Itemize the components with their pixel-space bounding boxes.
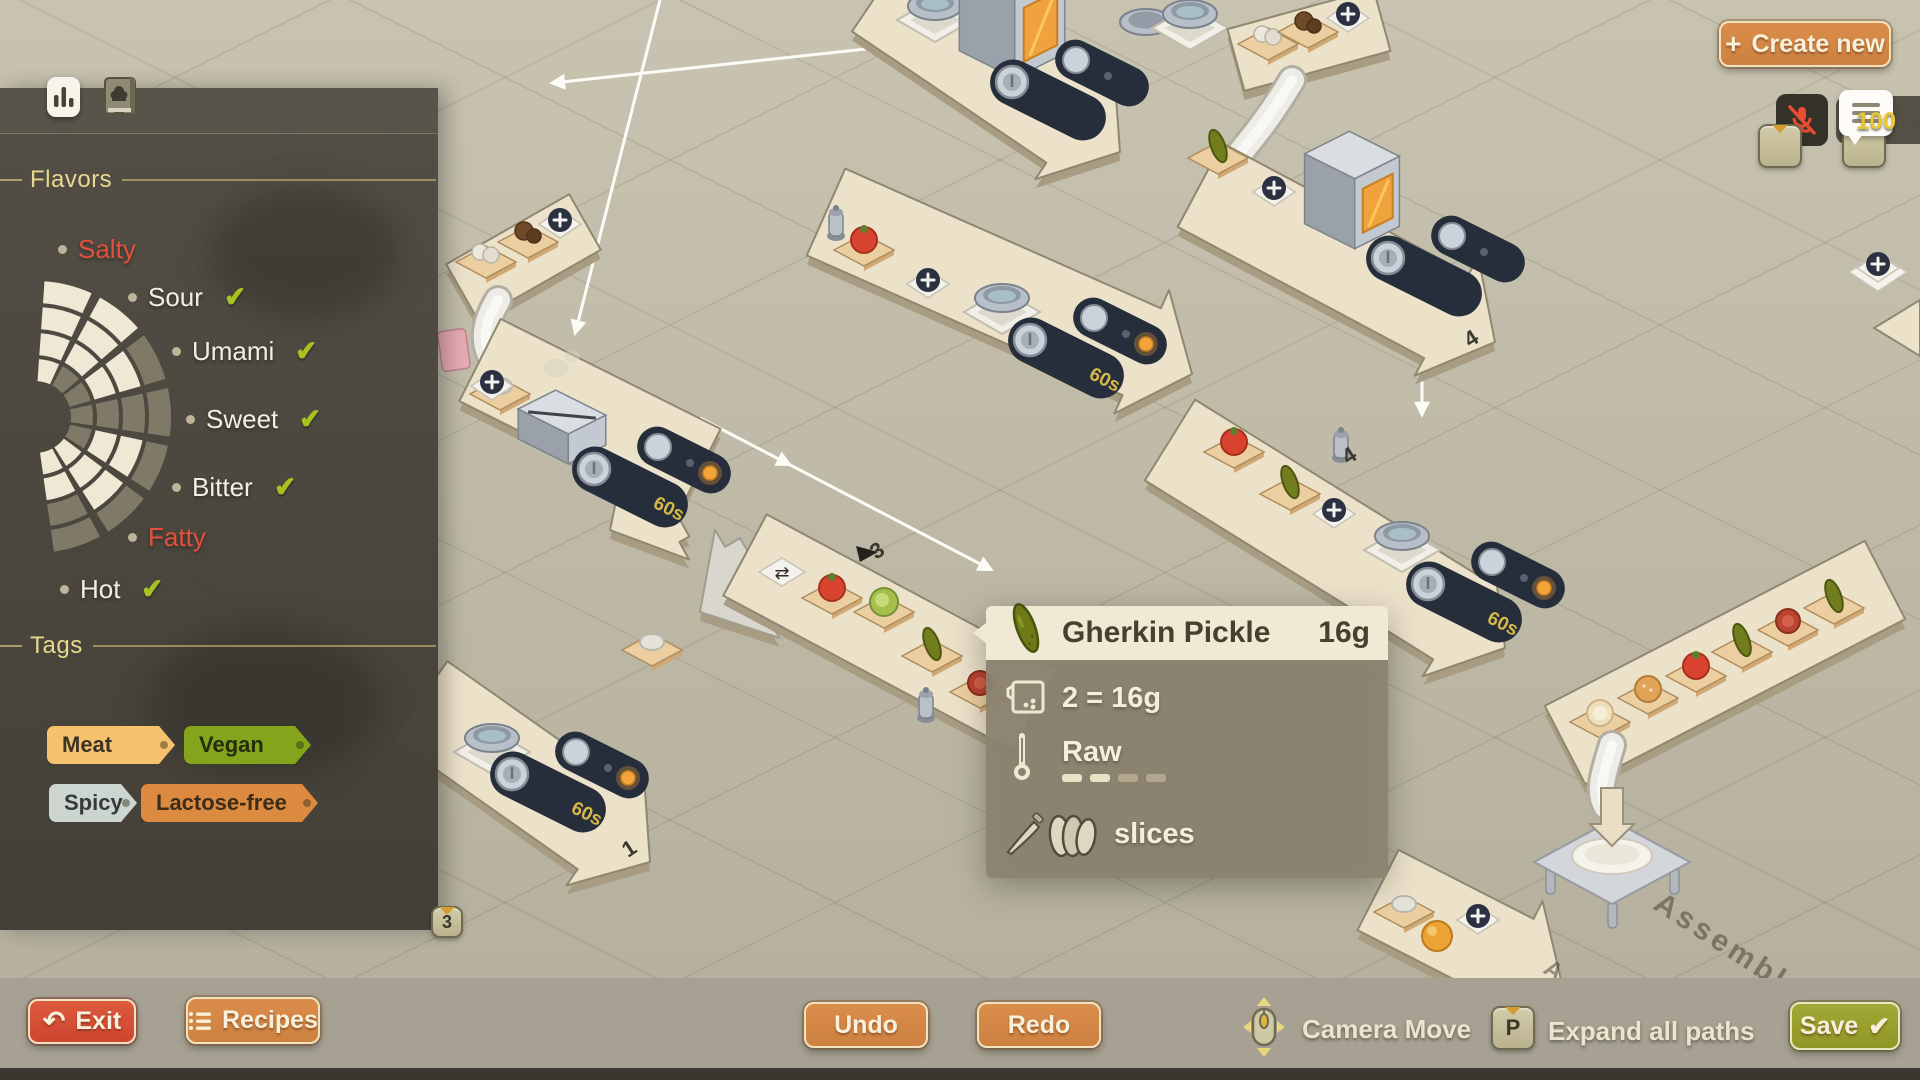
flavor-dot [128, 293, 137, 302]
expand-paths-keycap[interactable]: P [1491, 1006, 1535, 1050]
tag-hole [296, 741, 304, 749]
flavors-header-label: Flavors [30, 166, 112, 194]
panel-hotkey-keycap[interactable]: 3 [431, 906, 463, 938]
bottom-toolbar: ↶ Exit Recipes Undo Redo Camera Move P E… [0, 978, 1920, 1080]
tab-recipe-book[interactable] [101, 74, 138, 119]
flavor-wheel-segment [39, 333, 70, 360]
flavor-label: Sour [148, 282, 203, 313]
tags-header-label: Tags [30, 632, 83, 660]
check-icon: ✔ [294, 335, 319, 368]
check-icon: ✔ [1868, 1011, 1890, 1042]
tooltip-state: Raw [1062, 736, 1122, 769]
ingredient-tooltip: Gherkin Pickle 16g 2 = 16g Raw sl [986, 606, 1388, 878]
flavor-wheel-segment [44, 471, 76, 500]
tag-vegan[interactable]: Vegan [184, 726, 311, 764]
state-pip [1118, 774, 1138, 782]
flavor-bitter[interactable]: Bitter✔ [172, 472, 296, 503]
mouse-move-icon [1240, 996, 1288, 1058]
list-icon [188, 1011, 212, 1031]
flavor-dot [186, 415, 195, 424]
tag-hole [122, 799, 130, 807]
create-new-label: Create new [1751, 30, 1884, 59]
oven[interactable] [1305, 131, 1400, 248]
exit-button[interactable]: ↶ Exit [28, 999, 136, 1044]
redo-label: Redo [1008, 1011, 1071, 1040]
tag-hole [160, 741, 168, 749]
exit-label: Exit [75, 1007, 121, 1036]
tooltip-header: Gherkin Pickle 16g [986, 606, 1388, 660]
tag-label: Lactose-free [156, 790, 287, 816]
tooltip-weight: 16g [1318, 616, 1370, 650]
check-icon: ✔ [298, 403, 323, 436]
tooltip-quantity: 2 = 16g [1062, 682, 1161, 715]
flavor-label: Salty [78, 234, 136, 265]
flavor-dot [172, 483, 181, 492]
thermometer-icon [1012, 730, 1034, 782]
flavor-umami[interactable]: Umami✔ [172, 336, 318, 367]
recipes-label: Recipes [222, 1006, 318, 1035]
flavors-header: Flavors [0, 166, 438, 194]
slices-icon [1046, 810, 1106, 862]
flavor-label: Sweet [206, 404, 278, 435]
tooltip-prep: slices [1114, 818, 1195, 851]
flavor-salty[interactable]: Salty [58, 234, 136, 265]
bar-chart-icon [53, 85, 75, 109]
create-new-button[interactable]: + Create new [1719, 21, 1891, 67]
pepper-grinder[interactable] [827, 205, 845, 241]
plus-icon: + [1725, 28, 1741, 60]
knife-icon [1002, 812, 1044, 860]
tag-hole [303, 799, 311, 807]
save-button[interactable]: Save ✔ [1790, 1002, 1900, 1050]
state-pips [1062, 774, 1182, 782]
chat-count-badge: 100 [1856, 108, 1896, 136]
tag-spicy[interactable]: Spicy [49, 784, 137, 822]
mute-keycap[interactable] [1758, 124, 1802, 168]
tag-label: Meat [62, 732, 112, 758]
flavor-wheel [0, 278, 185, 563]
tag-label: Vegan [199, 732, 264, 758]
expand-all-paths-label: Expand all paths [1548, 1016, 1755, 1047]
flavor-sour[interactable]: Sour✔ [128, 282, 247, 313]
state-pip [1062, 774, 1082, 782]
redo-button[interactable]: Redo [977, 1002, 1101, 1048]
ingredient-panel: Flavors SaltySour✔Umami✔Sweet✔Bitter✔Fat… [0, 88, 438, 930]
tag-label: Spicy [64, 790, 123, 816]
tag-lactose-free[interactable]: Lactose-free [141, 784, 318, 822]
flavor-sweet[interactable]: Sweet✔ [186, 404, 322, 435]
state-pip [1090, 774, 1110, 782]
flavor-wheel-segment [41, 307, 81, 337]
tooltip-body: 2 = 16g Raw slices [986, 660, 1388, 878]
flavor-dot [58, 245, 67, 254]
flavor-label: Bitter [192, 472, 253, 503]
undo-button[interactable]: Undo [804, 1002, 928, 1048]
save-label: Save [1800, 1012, 1858, 1041]
pepper-grinder[interactable] [917, 687, 935, 723]
check-icon: ✔ [273, 471, 298, 504]
flavor-dot [60, 585, 69, 594]
flavor-hot[interactable]: Hot✔ [60, 574, 164, 605]
svg-text:⇄: ⇄ [774, 563, 789, 583]
flavor-wheel-segment [87, 430, 117, 462]
recipes-button[interactable]: Recipes [186, 997, 320, 1044]
tags-header: Tags [0, 632, 438, 660]
flavor-wheel-segment [121, 394, 145, 433]
flavor-wheel-segment [146, 388, 171, 437]
panel-hotkey-label: 3 [442, 912, 452, 933]
flavor-label: Fatty [148, 522, 206, 553]
state-pip [1146, 774, 1166, 782]
recipe-book-icon [101, 74, 138, 119]
flavor-dot [172, 347, 181, 356]
check-icon: ✔ [223, 281, 248, 314]
flavor-label: Umami [192, 336, 274, 367]
camera-move-label: Camera Move [1302, 1014, 1471, 1045]
flavor-fatty[interactable]: Fatty [128, 522, 206, 553]
tab-stats[interactable] [47, 77, 80, 117]
check-icon: ✔ [140, 573, 165, 606]
pickle-icon [998, 594, 1054, 656]
tooltip-title: Gherkin Pickle [1062, 616, 1270, 650]
tag-meat[interactable]: Meat [47, 726, 175, 764]
undo-label: Undo [834, 1011, 898, 1040]
flavor-label: Hot [80, 574, 120, 605]
flavor-dot [128, 533, 137, 542]
back-arrow-icon: ↶ [43, 1006, 66, 1037]
expand-key-label: P [1506, 1015, 1521, 1041]
flavor-wheel-segment [96, 399, 119, 429]
flavor-wheel-segment [70, 405, 93, 426]
measuring-cup-icon [1006, 676, 1050, 720]
